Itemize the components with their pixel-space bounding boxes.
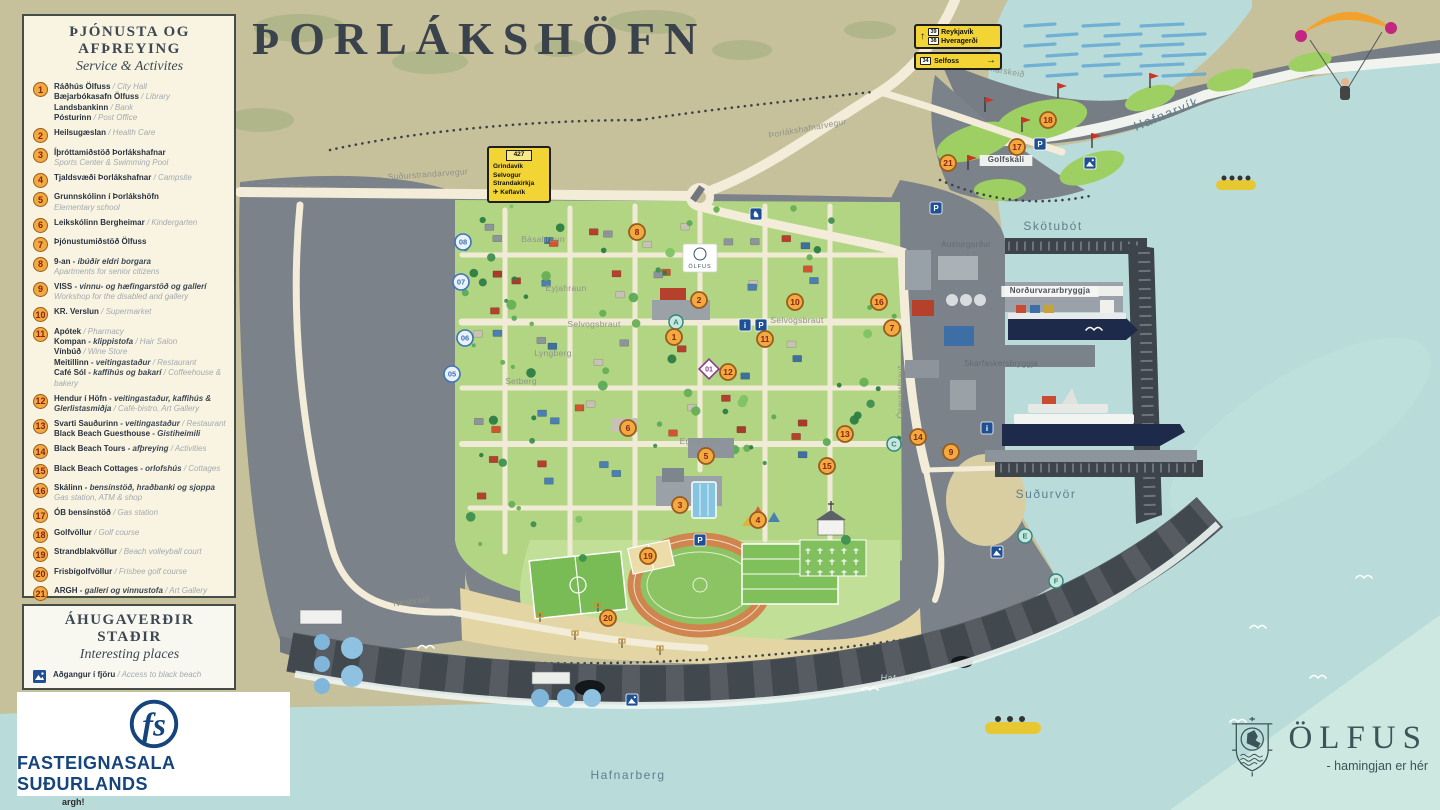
right-arrow-icon: →: [986, 56, 996, 66]
svg-text:P: P: [697, 536, 703, 545]
svg-text:♞: ♞: [752, 210, 759, 219]
svg-text:Setberg: Setberg: [505, 376, 537, 386]
svg-text:Golfskáli: Golfskáli: [988, 155, 1025, 164]
legend-item-number: 16: [33, 483, 48, 498]
svg-text:8: 8: [635, 227, 640, 237]
olfus-name: ÖLFUS: [1288, 720, 1428, 757]
svg-text:A: A: [673, 318, 679, 327]
legend-item-text: Ráðhús Ölfuss / City HallBæjarbókasafn Ö…: [54, 82, 170, 124]
legend-item-number: 11: [33, 327, 48, 342]
photo-icon: [33, 670, 46, 683]
legend-item-number: 8: [33, 257, 48, 272]
places-legend-subtitle: Interesting places: [33, 647, 226, 663]
legend-item-number: 9: [33, 282, 48, 297]
fasteignasala-logo-box: fs FASTEIGNASALA SUÐURLANDS: [17, 692, 290, 796]
svg-text:Básahraun: Básahraun: [521, 234, 565, 244]
sign-destination: Strandakirkja: [493, 180, 545, 189]
svg-text:Austurgarður: Austurgarður: [941, 240, 991, 249]
svg-text:2: 2: [697, 295, 702, 305]
legend-item-text: KR. Verslun / Supermarket: [54, 307, 151, 317]
map-marker-8: 8: [629, 224, 645, 240]
map-label: Skarfaskersbryggja: [964, 359, 1038, 368]
svg-text:08: 08: [459, 238, 467, 247]
legend-item: 19Strandblakvöllur / Beach volleyball co…: [33, 547, 226, 562]
legend-item-number: 17: [33, 508, 48, 523]
svg-text:15: 15: [822, 461, 832, 471]
map-marker-10: 10: [787, 294, 803, 310]
map-marker-1: 1: [666, 329, 682, 345]
map-label: Skötubót: [1023, 219, 1082, 233]
services-legend-panel: ÞJÓNUSTA OG AFÞREYING Service & Activite…: [22, 14, 236, 598]
sign-destinations: GrindavíkSelvogurStrandakirkja✈ Keflavík: [493, 163, 545, 198]
legend-item-number: 5: [33, 192, 48, 207]
map-marker-6: 6: [620, 420, 636, 436]
route-stop-marker: 05: [444, 366, 460, 382]
svg-text:Hafnarberg: Hafnarberg: [590, 768, 665, 782]
svg-text:20: 20: [603, 613, 613, 623]
legend-item: 14Black Beach Tours - afþreying / Activi…: [33, 444, 226, 459]
svg-text:05: 05: [448, 370, 456, 379]
sign-destination: Reykjavík: [941, 29, 973, 36]
svg-text:Norðurvararbryggja: Norðurvararbryggja: [1010, 286, 1091, 295]
legend-item: 11Apótek / PharmacyKompan - klippistofa …: [33, 327, 226, 389]
legend-item-number: 19: [33, 547, 48, 562]
route-stop-marker: 08: [455, 234, 471, 250]
svg-text:i: i: [986, 424, 988, 433]
legend-item: 9VISS - vinnu- og hæfingarstöð og galler…: [33, 282, 226, 303]
map-marker-20: 20: [600, 610, 616, 626]
map-credit: argh!: [62, 797, 85, 807]
sign-row: 39Reykjavík: [928, 28, 978, 36]
services-legend-subtitle: Service & Activites: [33, 59, 226, 75]
legend-item-text: Golfvöllur / Golf course: [54, 528, 139, 538]
svg-text:Skarfaskersbryggja: Skarfaskersbryggja: [964, 359, 1038, 368]
map-marker-13: 13: [837, 426, 853, 442]
places-legend-title: ÁHUGAVERÐIR STAÐIR: [33, 612, 226, 646]
parking-icon: P: [1034, 138, 1046, 150]
map-label: Setberg: [505, 376, 537, 386]
map-label: Hafnarberg: [590, 768, 665, 782]
svg-text:11: 11: [761, 334, 770, 344]
services-legend-items: 1Ráðhús Ölfuss / City HallBæjarbókasafn …: [33, 82, 226, 601]
svg-text:Selvogsbraut: Selvogsbraut: [567, 319, 621, 329]
route-badge-427: 427: [506, 150, 532, 161]
legend-item: 18Golfvöllur / Golf course: [33, 528, 226, 543]
legend-item-text: Black Beach Cottages - orlofshús / Cotta…: [54, 464, 220, 474]
legend-item: 6Leikskólinn Bergheimar / Kindergarten: [33, 218, 226, 233]
legend-item-number: 6: [33, 218, 48, 233]
legend-item-number: 10: [33, 307, 48, 322]
sign-row: 38Hveragerði: [928, 37, 978, 45]
svg-text:4: 4: [756, 515, 761, 525]
viewpoint-photo-icon: [626, 694, 638, 706]
map-poster: ÖLFUS iPPiPP♞ 0506070801ACEF HafnarvíkSk…: [0, 0, 1440, 810]
legend-item-text: Svarti Sauðurinn - veitingastaður / Rest…: [54, 419, 226, 440]
legend-item-number: 18: [33, 528, 48, 543]
letter-marker: C: [887, 437, 901, 451]
route-badge-34: 34: [920, 57, 931, 65]
viewpoint-photo-icon: [991, 546, 1003, 558]
map-marker-16: 16: [871, 294, 887, 310]
up-arrow-icon: ↑: [920, 32, 925, 42]
map-marker-3: 3: [672, 497, 688, 513]
sign-destination: ✈ Keflavík: [493, 189, 545, 198]
svg-text:01: 01: [705, 367, 713, 374]
legend-item-text: Grunnskólinn í ÞorlákshöfnElementary sch…: [54, 192, 159, 213]
legend-item-number: 3: [33, 148, 48, 163]
svg-text:F: F: [1054, 577, 1059, 586]
legend-item-text: Frisbígolfvöllur / Frisbee golf course: [54, 567, 187, 577]
road-sign-selfoss: 34 Selfoss →: [914, 52, 1002, 70]
svg-text:Skötubót: Skötubót: [1023, 219, 1082, 233]
map-label: Norðurvararbryggja: [1001, 286, 1098, 297]
legend-item: 7Þjónustumiðstöð Ölfuss: [33, 237, 226, 252]
legend-item-text: Strandblakvöllur / Beach volleyball cour…: [54, 547, 202, 557]
route-stop-marker: 07: [453, 274, 469, 290]
svg-text:9: 9: [949, 447, 954, 457]
legend-item: 12Hendur í Höfn - veitingastaður, kaffih…: [33, 394, 226, 415]
olfus-logo-box: ÖLFUS - hamingjan er hér: [1228, 698, 1428, 794]
legend-item: 2Heilsugæslan / Health Care: [33, 128, 226, 143]
parking-icon: P: [694, 534, 706, 546]
photo-icon: [33, 670, 47, 688]
legend-item: 15Black Beach Cottages - orlofshús / Cot…: [33, 464, 226, 479]
legend-item-text: Skálinn - bensínstöð, hraðbanki og sjopp…: [54, 483, 215, 504]
map-label: Lyngberg: [534, 348, 572, 358]
map-marker-19: 19: [640, 548, 656, 564]
svg-text:Egilsbraut: Egilsbraut: [680, 436, 721, 446]
svg-text:Lyngberg: Lyngberg: [534, 348, 572, 358]
map-marker-9: 9: [943, 444, 959, 460]
parking-icon: P: [755, 319, 767, 331]
legend-item: 89-an - íbúðir eldri borgaraApartments f…: [33, 257, 226, 278]
legend-item-text: Apótek / PharmacyKompan - klippistofa / …: [54, 327, 226, 389]
sign-destination: Grindavík: [493, 163, 545, 172]
svg-text:Selvogsbraut: Selvogsbraut: [770, 315, 824, 325]
legend-item-number: 7: [33, 237, 48, 252]
svg-text:14: 14: [913, 432, 923, 442]
legend-item-text: Aðgangur í fjöru / Access to black beach: [53, 670, 201, 680]
legend-item: 21ARGH - gallerí og vinnustofa / Art Gal…: [33, 586, 226, 601]
route-badge: 39: [928, 28, 939, 36]
legend-item-number: 14: [33, 444, 48, 459]
road-sign-north: ↑ 39Reykjavík38Hveragerði: [914, 24, 1002, 49]
olfus-crest-icon: [1228, 702, 1276, 790]
riding-icon: ♞: [750, 208, 762, 220]
map-label: Selvogsbraut: [770, 315, 824, 325]
legend-item-text: Heilsugæslan / Health Care: [54, 128, 155, 138]
places-legend-panel: ÁHUGAVERÐIR STAÐIR Interesting places Að…: [22, 604, 236, 690]
map-label: Suðurvör: [1016, 487, 1077, 501]
legend-item-number: 20: [33, 567, 48, 582]
info-icon: i: [981, 422, 993, 434]
map-label: Golfskáli: [980, 155, 1033, 166]
legend-item-text: 9-an - íbúðir eldri borgaraApartments fo…: [54, 257, 159, 278]
svg-text:10: 10: [790, 297, 800, 307]
sign-selfoss-label: Selfoss: [934, 58, 959, 65]
svg-text:07: 07: [457, 278, 465, 287]
map-label: Básahraun: [521, 234, 565, 244]
legend-item: 3Íþróttamiðstöð ÞorlákshafnarSports Cent…: [33, 148, 226, 169]
road-sign-427: 427 GrindavíkSelvogurStrandakirkja✈ Kefl…: [487, 146, 551, 203]
olfus-tagline: - hamingjan er hér: [1327, 759, 1428, 773]
svg-text:i: i: [744, 321, 746, 330]
map-label: Eyjahraun: [546, 283, 587, 293]
map-marker-21: 21: [940, 155, 956, 171]
map-label: Selvogsbraut: [567, 319, 621, 329]
map-label: Óseyrarbraut: [895, 365, 905, 419]
map-marker-14: 14: [910, 429, 926, 445]
svg-text:P: P: [758, 321, 764, 330]
map-marker-2: 2: [691, 292, 707, 308]
sign-destination: Selvogur: [493, 172, 545, 181]
svg-text:06: 06: [461, 334, 469, 343]
legend-item: 1Ráðhús Ölfuss / City HallBæjarbókasafn …: [33, 82, 226, 124]
svg-text:P: P: [933, 204, 939, 213]
svg-text:Suðurvör: Suðurvör: [1016, 487, 1077, 501]
route-badge: 38: [928, 37, 939, 45]
svg-text:5: 5: [704, 451, 709, 461]
route-stop-marker: 06: [457, 330, 473, 346]
svg-text:19: 19: [643, 551, 653, 561]
legend-item-number: 21: [33, 586, 48, 601]
map-marker-11: 11: [757, 331, 773, 347]
legend-item-text: Tjaldsvæði Þorlákshafnar / Campsite: [54, 173, 192, 183]
map-label: Austurgarður: [941, 240, 991, 249]
map-marker-4: 4: [750, 512, 766, 528]
map-marker-5: 5: [698, 448, 714, 464]
fs-monogram-icon: fs: [125, 693, 183, 751]
viewpoint-photo-icon: [1084, 157, 1096, 169]
svg-text:ÖLFUS: ÖLFUS: [688, 263, 711, 270]
football-field: [529, 551, 627, 618]
legend-item: 5Grunnskólinn í ÞorlákshöfnElementary sc…: [33, 192, 226, 213]
info-icon: i: [739, 319, 751, 331]
map-label: Egilsbraut: [680, 436, 721, 446]
svg-text:1: 1: [672, 332, 677, 342]
svg-text:18: 18: [1043, 115, 1053, 125]
svg-text:E: E: [1022, 532, 1027, 541]
legend-item-text: Íþróttamiðstöð ÞorlákshafnarSports Cente…: [54, 148, 168, 169]
svg-text:Óseyrarbraut: Óseyrarbraut: [895, 365, 905, 419]
legend-item: 17ÓB bensínstöð / Gas station: [33, 508, 226, 523]
svg-text:P: P: [1037, 140, 1043, 149]
legend-item-number: 12: [33, 394, 48, 409]
legend-item: 4Tjaldsvæði Þorlákshafnar / Campsite: [33, 173, 226, 188]
parking-icon: P: [930, 202, 942, 214]
svg-text:13: 13: [840, 429, 850, 439]
legend-item-text: Black Beach Tours - afþreying / Activiti…: [54, 444, 207, 454]
legend-item-text: ÓB bensínstöð / Gas station: [54, 508, 158, 518]
legend-item-number: 1: [33, 82, 48, 97]
legend-item: Aðgangur í fjöru / Access to black beach: [33, 670, 226, 688]
map-marker-12: 12: [720, 364, 736, 380]
svg-text:Eyjahraun: Eyjahraun: [546, 283, 587, 293]
map-marker-15: 15: [819, 458, 835, 474]
svg-text:C: C: [891, 440, 897, 449]
legend-item-number: 4: [33, 173, 48, 188]
legend-item-number: 13: [33, 419, 48, 434]
svg-text:12: 12: [723, 367, 733, 377]
sign-destination: Hveragerði: [941, 38, 978, 45]
svg-text:7: 7: [890, 323, 895, 333]
legend-item-text: VISS - vinnu- og hæfingarstöð og gallerí…: [54, 282, 226, 303]
legend-item-text: Þjónustumiðstöð Ölfuss: [54, 237, 146, 247]
letter-marker: A: [669, 315, 683, 329]
map-marker-18: 18: [1040, 112, 1056, 128]
legend-item-number: 2: [33, 128, 48, 143]
legend-item-text: Hendur í Höfn - veitingastaður, kaffihús…: [54, 394, 226, 415]
legend-item-text: Leikskólinn Bergheimar / Kindergarten: [54, 218, 197, 228]
letter-marker: F: [1049, 574, 1063, 588]
legend-item: 20Frisbígolfvöllur / Frisbee golf course: [33, 567, 226, 582]
legend-item-number: 15: [33, 464, 48, 479]
svg-text:16: 16: [874, 297, 884, 307]
legend-item: 16Skálinn - bensínstöð, hraðbanki og sjo…: [33, 483, 226, 504]
legend-item: 10KR. Verslun / Supermarket: [33, 307, 226, 322]
map-marker-17: 17: [1009, 139, 1025, 155]
map-marker-7: 7: [884, 320, 900, 336]
svg-text:17: 17: [1012, 142, 1022, 152]
svg-text:fs: fs: [142, 708, 166, 744]
services-legend-title: ÞJÓNUSTA OG AFÞREYING: [33, 24, 226, 58]
legend-item-text: ARGH - gallerí og vinnustofa / Art Galle…: [54, 586, 207, 596]
svg-text:3: 3: [678, 500, 683, 510]
letter-marker: E: [1018, 529, 1032, 543]
svg-text:21: 21: [943, 158, 953, 168]
fasteignasala-name: FASTEIGNASALA SUÐURLANDS: [17, 753, 290, 795]
olfus-map-banner: ÖLFUS: [683, 244, 717, 272]
legend-item: 13Svarti Sauðurinn - veitingastaður / Re…: [33, 419, 226, 440]
svg-text:6: 6: [626, 423, 631, 433]
page-title: ÞORLÁKSHÖFN: [252, 12, 706, 65]
roundabout: [686, 183, 714, 211]
